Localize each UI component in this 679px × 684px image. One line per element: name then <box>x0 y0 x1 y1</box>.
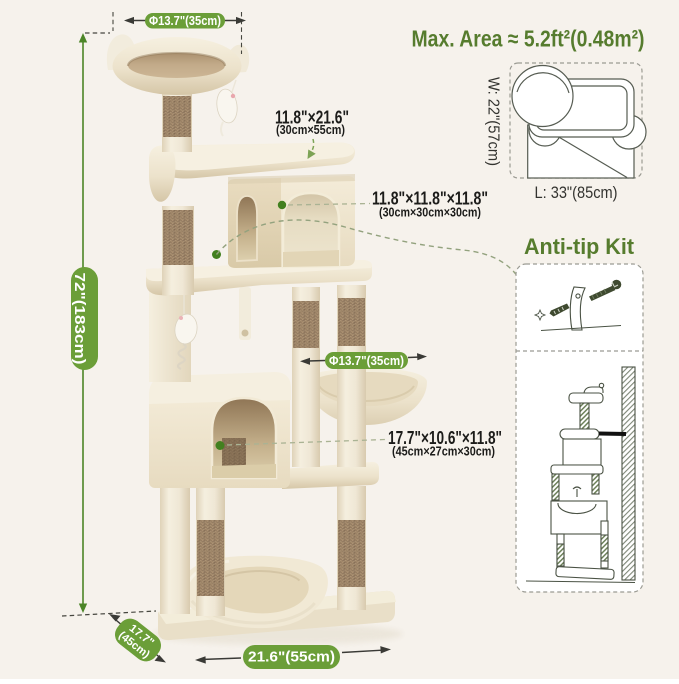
svg-text:(30cm×55cm): (30cm×55cm) <box>276 123 345 137</box>
svg-text:Φ13.7"(35cm): Φ13.7"(35cm) <box>149 14 221 28</box>
svg-text:(45cm×27cm×30cm): (45cm×27cm×30cm) <box>392 445 495 459</box>
svg-text:Anti-tip Kit: Anti-tip Kit <box>524 234 635 259</box>
svg-text:(30cm×30cm×30cm): (30cm×30cm×30cm) <box>379 206 481 220</box>
svg-text:72"(183cm): 72"(183cm) <box>71 273 88 365</box>
svg-text:L: 33"(85cm): L: 33"(85cm) <box>535 183 618 202</box>
svg-text:21.6"(55cm): 21.6"(55cm) <box>248 649 335 666</box>
svg-text:Max. Area ≈ 5.2ft²(0.48m²): Max. Area ≈ 5.2ft²(0.48m²) <box>412 26 645 52</box>
svg-text:W: 22"(57cm): W: 22"(57cm) <box>485 77 502 166</box>
svg-text:Φ13.7"(35cm): Φ13.7"(35cm) <box>329 353 404 368</box>
